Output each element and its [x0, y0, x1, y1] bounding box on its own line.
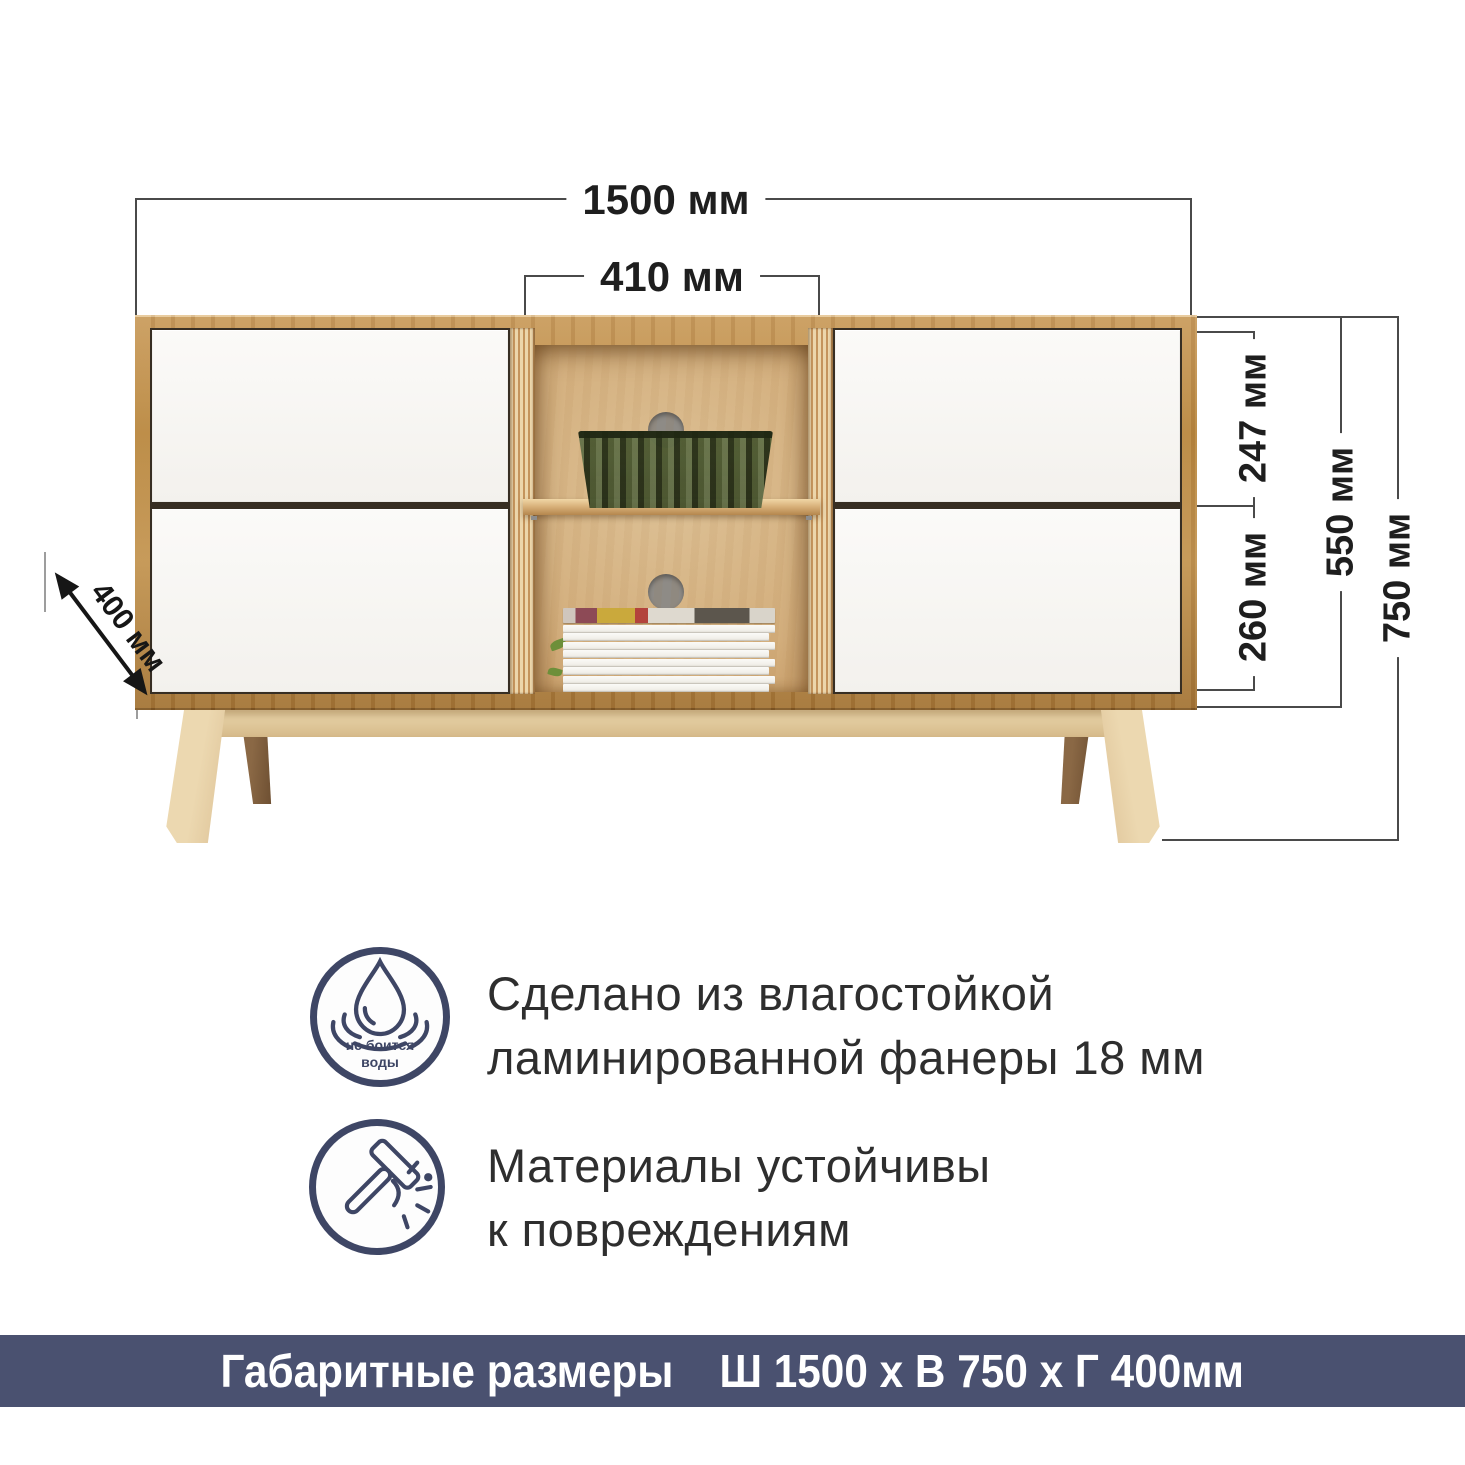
- cabinet-front-leg-right: [1097, 705, 1163, 843]
- cabinet-base-apron: [205, 710, 1137, 737]
- footer-text: Габаритные размеры Ш 1500 х В 750 х Г 40…: [221, 1344, 1244, 1398]
- drawer-front-bottom-right: [835, 509, 1180, 692]
- depth-arrow: 400 мм: [56, 574, 146, 694]
- dim-tick-750-bottom: [1162, 839, 1398, 841]
- shelf-pin: [806, 516, 812, 520]
- dim-tick-550-bottom: [1186, 706, 1341, 708]
- footer-label: Габаритные размеры: [221, 1344, 674, 1398]
- footer-dimensions-bar: Габаритные размеры Ш 1500 х В 750 х Г 40…: [0, 1335, 1465, 1407]
- dim-label-top-drawer: 247 мм: [1233, 339, 1276, 497]
- drawer-unit-right: [833, 328, 1182, 694]
- green-glass-basket: [578, 431, 773, 508]
- dim-label-bottom-drawer: 260 мм: [1233, 518, 1276, 676]
- magazine-stack: [563, 607, 775, 692]
- dim-tick-247-top: [1197, 331, 1255, 333]
- dim-label-overall-width: 1500 мм: [566, 176, 765, 224]
- product-infographic: 1500 мм 410 мм 247 мм 260 мм 550 мм 750 …: [0, 0, 1465, 1465]
- dim-ext-1500-right: [1190, 198, 1192, 316]
- cabinet-front-leg-left: [163, 705, 229, 843]
- cable-hole-bottom: [648, 574, 684, 610]
- drawer-front-bottom-left: [152, 509, 508, 692]
- footer-value: Ш 1500 х В 750 х Г 400мм: [720, 1344, 1244, 1398]
- water-badge: не боится воды: [317, 1037, 443, 1071]
- drawer-front-top-right: [835, 330, 1180, 502]
- water-drop-icon: не боится воды: [310, 947, 450, 1087]
- dim-ext-top-right: [1197, 316, 1398, 318]
- drawer-unit-left: [150, 328, 510, 694]
- dim-label-body-height: 550 мм: [1320, 433, 1363, 591]
- dim-label-opening-width: 410 мм: [584, 253, 760, 301]
- magazine-cover: [563, 608, 775, 623]
- feature-text-moisture: Сделано из влагостойкой ламинированной ф…: [487, 962, 1205, 1090]
- shelf-pin: [531, 516, 537, 520]
- feature-text-durability: Материалы устойчивы к повреждениям: [487, 1134, 991, 1262]
- hammer-icon: [309, 1119, 445, 1255]
- drawer-front-top-left: [152, 330, 508, 502]
- dim-ext-depth-back: [44, 552, 46, 612]
- dim-label-overall-height: 750 мм: [1377, 499, 1420, 657]
